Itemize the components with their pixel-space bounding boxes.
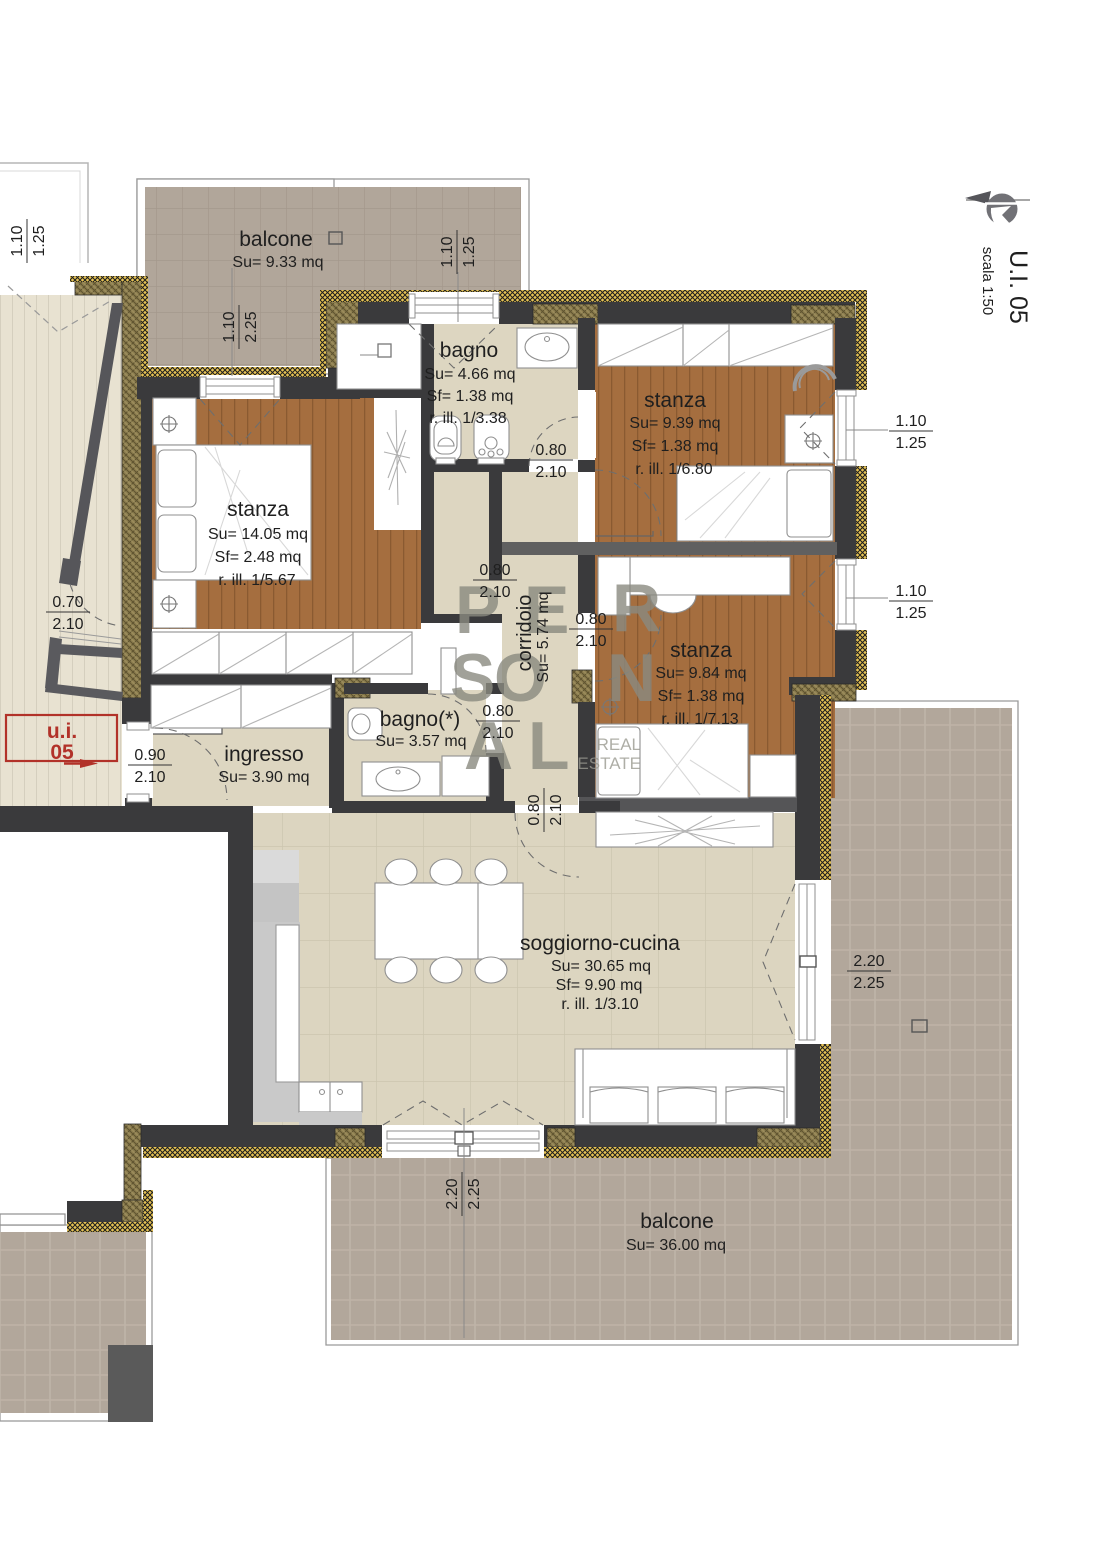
svg-text:balcone: balcone <box>640 1210 714 1233</box>
svg-text:Su= 30.65 mq: Su= 30.65 mq <box>551 958 651 975</box>
svg-text:0.80: 0.80 <box>526 794 543 825</box>
svg-text:bagno(*): bagno(*) <box>380 708 461 731</box>
svg-text:stanza: stanza <box>644 389 706 412</box>
svg-text:Su= 9.33 mq: Su= 9.33 mq <box>232 254 323 271</box>
svg-text:1.25: 1.25 <box>461 236 478 267</box>
svg-text:2.10: 2.10 <box>52 616 83 633</box>
svg-text:Sf= 1.38 mq: Sf= 1.38 mq <box>427 388 514 405</box>
svg-text:2.10: 2.10 <box>535 464 566 481</box>
svg-text:Su= 9.84 mq: Su= 9.84 mq <box>655 665 746 682</box>
svg-text:2.20: 2.20 <box>444 1178 461 1209</box>
svg-text:Su= 3.57 mq: Su= 3.57 mq <box>375 733 466 750</box>
svg-text:scala 1:50: scala 1:50 <box>979 247 996 315</box>
svg-text:2.10: 2.10 <box>548 794 565 825</box>
svg-text:R: R <box>612 570 661 646</box>
svg-text:r. ill. 1/6.80: r. ill. 1/6.80 <box>635 461 712 478</box>
svg-text:1.10: 1.10 <box>9 225 26 256</box>
svg-text:Su= 4.66 mq: Su= 4.66 mq <box>424 366 515 383</box>
svg-text:stanza: stanza <box>227 498 289 521</box>
svg-text:REAL: REAL <box>597 735 641 754</box>
svg-text:0.80: 0.80 <box>482 703 513 720</box>
svg-text:1.10: 1.10 <box>895 413 926 430</box>
svg-text:1.25: 1.25 <box>31 225 48 256</box>
svg-text:Su= 5.74 mq: Su= 5.74 mq <box>535 591 552 682</box>
svg-text:ingresso: ingresso <box>224 743 303 766</box>
svg-text:2.10: 2.10 <box>134 769 165 786</box>
svg-text:0.90: 0.90 <box>134 747 165 764</box>
svg-text:bagno: bagno <box>440 339 498 362</box>
svg-text:1.10: 1.10 <box>895 583 926 600</box>
svg-text:0.80: 0.80 <box>479 562 510 579</box>
svg-text:Sf= 1.38 mq: Sf= 1.38 mq <box>658 688 745 705</box>
svg-text:2.25: 2.25 <box>466 1178 483 1209</box>
svg-text:N: N <box>607 640 656 716</box>
svg-text:1.10: 1.10 <box>221 311 238 342</box>
svg-text:r. ill. 1/3.10: r. ill. 1/3.10 <box>561 996 638 1013</box>
svg-text:Su= 36.00 mq: Su= 36.00 mq <box>626 1237 726 1254</box>
svg-text:2.25: 2.25 <box>243 311 260 342</box>
svg-text:1.25: 1.25 <box>895 605 926 622</box>
svg-text:u.i.: u.i. <box>47 720 77 743</box>
svg-text:1.10: 1.10 <box>439 236 456 267</box>
svg-text:2.10: 2.10 <box>575 633 606 650</box>
svg-text:stanza: stanza <box>670 639 732 662</box>
svg-text:U.I. 05: U.I. 05 <box>1004 250 1032 324</box>
svg-text:2.10: 2.10 <box>482 725 513 742</box>
svg-text:2.25: 2.25 <box>853 975 884 992</box>
svg-text:2.20: 2.20 <box>853 953 884 970</box>
svg-text:ESTATE: ESTATE <box>577 754 641 773</box>
svg-text:Sf= 2.48 mq: Sf= 2.48 mq <box>215 549 302 566</box>
svg-text:0.80: 0.80 <box>575 611 606 628</box>
svg-text:0.80: 0.80 <box>535 442 566 459</box>
svg-text:L: L <box>528 708 570 784</box>
svg-text:r. ill. 1/7.13: r. ill. 1/7.13 <box>661 711 738 728</box>
svg-text:corridoio: corridoio <box>514 595 536 672</box>
svg-text:1.25: 1.25 <box>895 435 926 452</box>
svg-text:2.10: 2.10 <box>479 584 510 601</box>
svg-text:r. ill. 1/3.38: r. ill. 1/3.38 <box>429 410 506 427</box>
svg-text:balcone: balcone <box>239 228 313 251</box>
svg-text:0.70: 0.70 <box>52 594 83 611</box>
svg-text:Su= 14.05 mq: Su= 14.05 mq <box>208 526 308 543</box>
svg-text:05: 05 <box>50 741 74 764</box>
svg-text:Su= 9.39 mq: Su= 9.39 mq <box>629 415 720 432</box>
svg-text:Sf= 1.38 mq: Sf= 1.38 mq <box>632 438 719 455</box>
svg-text:r. ill. 1/5.67: r. ill. 1/5.67 <box>218 572 295 589</box>
svg-text:Sf= 9.90 mq: Sf= 9.90 mq <box>556 977 643 994</box>
svg-text:soggiorno-cucina: soggiorno-cucina <box>520 932 680 955</box>
svg-text:Su= 3.90 mq: Su= 3.90 mq <box>218 769 309 786</box>
